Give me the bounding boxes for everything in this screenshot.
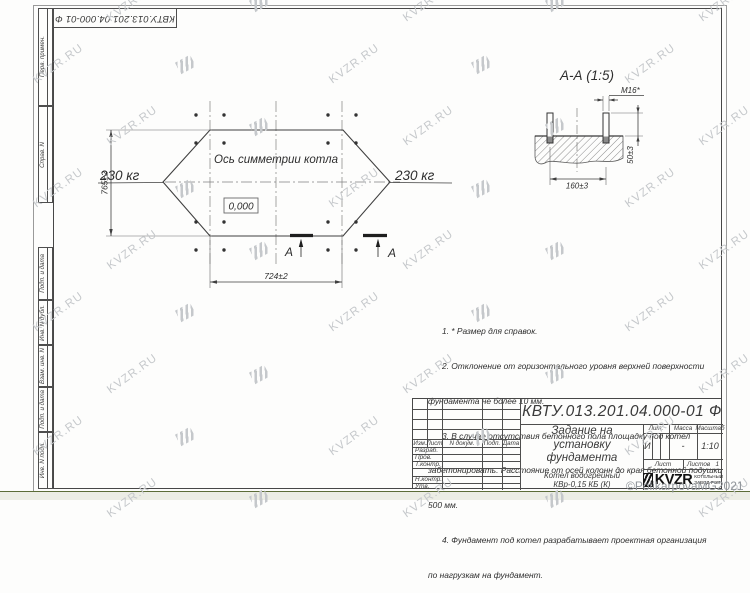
col-izm: Изм. — [413, 439, 427, 447]
listov-value: 1 — [715, 461, 719, 468]
lit-label: Лит. — [643, 424, 669, 433]
col-ndoc: N докум. — [442, 439, 482, 447]
section-letter: А — [284, 245, 293, 259]
section-mark-left: А — [284, 236, 313, 260]
axis-label: Ось симметрии котла — [214, 154, 338, 166]
dim-160-text: 160±3 — [566, 182, 589, 191]
row-nkontr: Н.контр. — [413, 476, 442, 483]
masshtab-value: 1:10 — [697, 433, 723, 459]
note-line: по нагрузкам на фундамент. — [428, 570, 728, 582]
section-mark-right: А — [363, 236, 396, 261]
note-line: 1. * Размер для справок. — [428, 326, 728, 338]
title-block: Изм. Лист N докум. Подп. Дата Разраб. Пр… — [412, 398, 722, 489]
doc-title-line1: Задание на — [521, 425, 643, 439]
thread-label: М16* — [621, 86, 641, 95]
note-line: 2. Отклонение от горизонтального уровня … — [428, 361, 728, 373]
row-prov: Пров. — [413, 454, 442, 461]
note-line: 4. Фундамент под котел разрабатывает про… — [428, 535, 728, 547]
doc-title-line2: установку — [521, 439, 643, 453]
col-list: Лист — [427, 439, 442, 447]
bottom-strip-light — [0, 492, 750, 500]
plan-view: Ось симметрии котла 0,000 230 кг 230 кг … — [98, 101, 452, 288]
listov-label: Листов — [687, 461, 710, 468]
row-utv: Утв. — [413, 483, 442, 490]
lit-value: И — [643, 433, 652, 459]
masshtab-label: Масштаб — [697, 424, 723, 433]
product-name-line2: КВр-0,15 КБ (К) — [521, 480, 643, 489]
section-title: А-А (1:5) — [559, 68, 614, 83]
drawing-sheet: { "frame": { "designation_top": "КВТУ.01… — [0, 0, 750, 500]
dim-765-text: 765±2 — [100, 171, 110, 195]
dim-m16: М16* — [594, 86, 644, 111]
designation: КВТУ.013.201.04.000-01 Ф — [521, 399, 723, 424]
copyright-watermark: ©PolikarpovaMG2021 — [626, 479, 744, 493]
doc-title-line3: фундамента — [521, 452, 643, 466]
dim-724-text: 724±2 — [264, 271, 288, 281]
col-data: Дата — [502, 439, 520, 447]
load-right: 230 кг — [394, 168, 435, 183]
dim-50-text: 50±3 — [626, 146, 635, 164]
massa-label: Масса — [669, 424, 697, 433]
list-label: Лист — [643, 459, 683, 469]
plan-centerlines — [165, 101, 400, 265]
product-name-line1: Котел водогрейный — [521, 471, 643, 480]
section-letter: А — [387, 246, 396, 260]
product-name: Котел водогрейный КВр-0,15 КБ (К) — [521, 471, 643, 490]
doc-title: Задание на установку фундамента — [521, 425, 643, 468]
row-tkontr: Т.контр. — [413, 461, 442, 468]
note-line: 500 мм. — [428, 500, 728, 512]
massa-value: - — [669, 433, 697, 459]
section-view: А-А (1:5) М16* — [535, 68, 644, 191]
level-mark-text: 0,000 — [228, 202, 253, 213]
row-razrab: Разраб. — [413, 447, 442, 454]
foundation-outline — [163, 130, 390, 236]
col-podp: Подп. — [482, 439, 502, 447]
listov-cell: Листов 1 — [683, 459, 723, 469]
